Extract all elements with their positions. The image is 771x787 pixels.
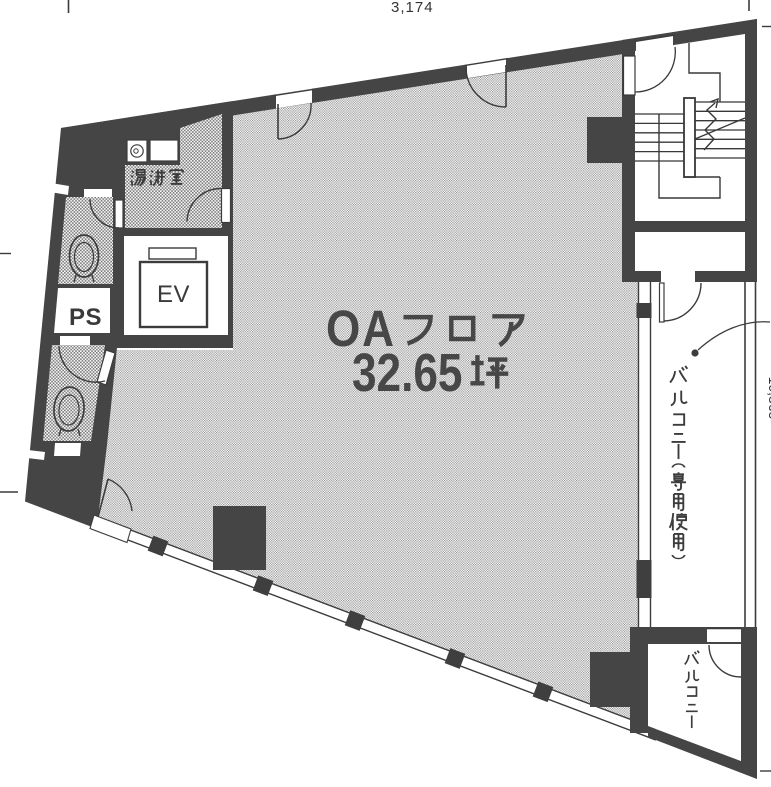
- svg-text:32.65: 32.65: [352, 343, 462, 403]
- svg-text:10,365: 10,365: [766, 377, 771, 420]
- svg-text:3,174: 3,174: [391, 0, 434, 16]
- svg-text:EV: EV: [157, 281, 190, 308]
- svg-text:PS: PS: [69, 304, 102, 331]
